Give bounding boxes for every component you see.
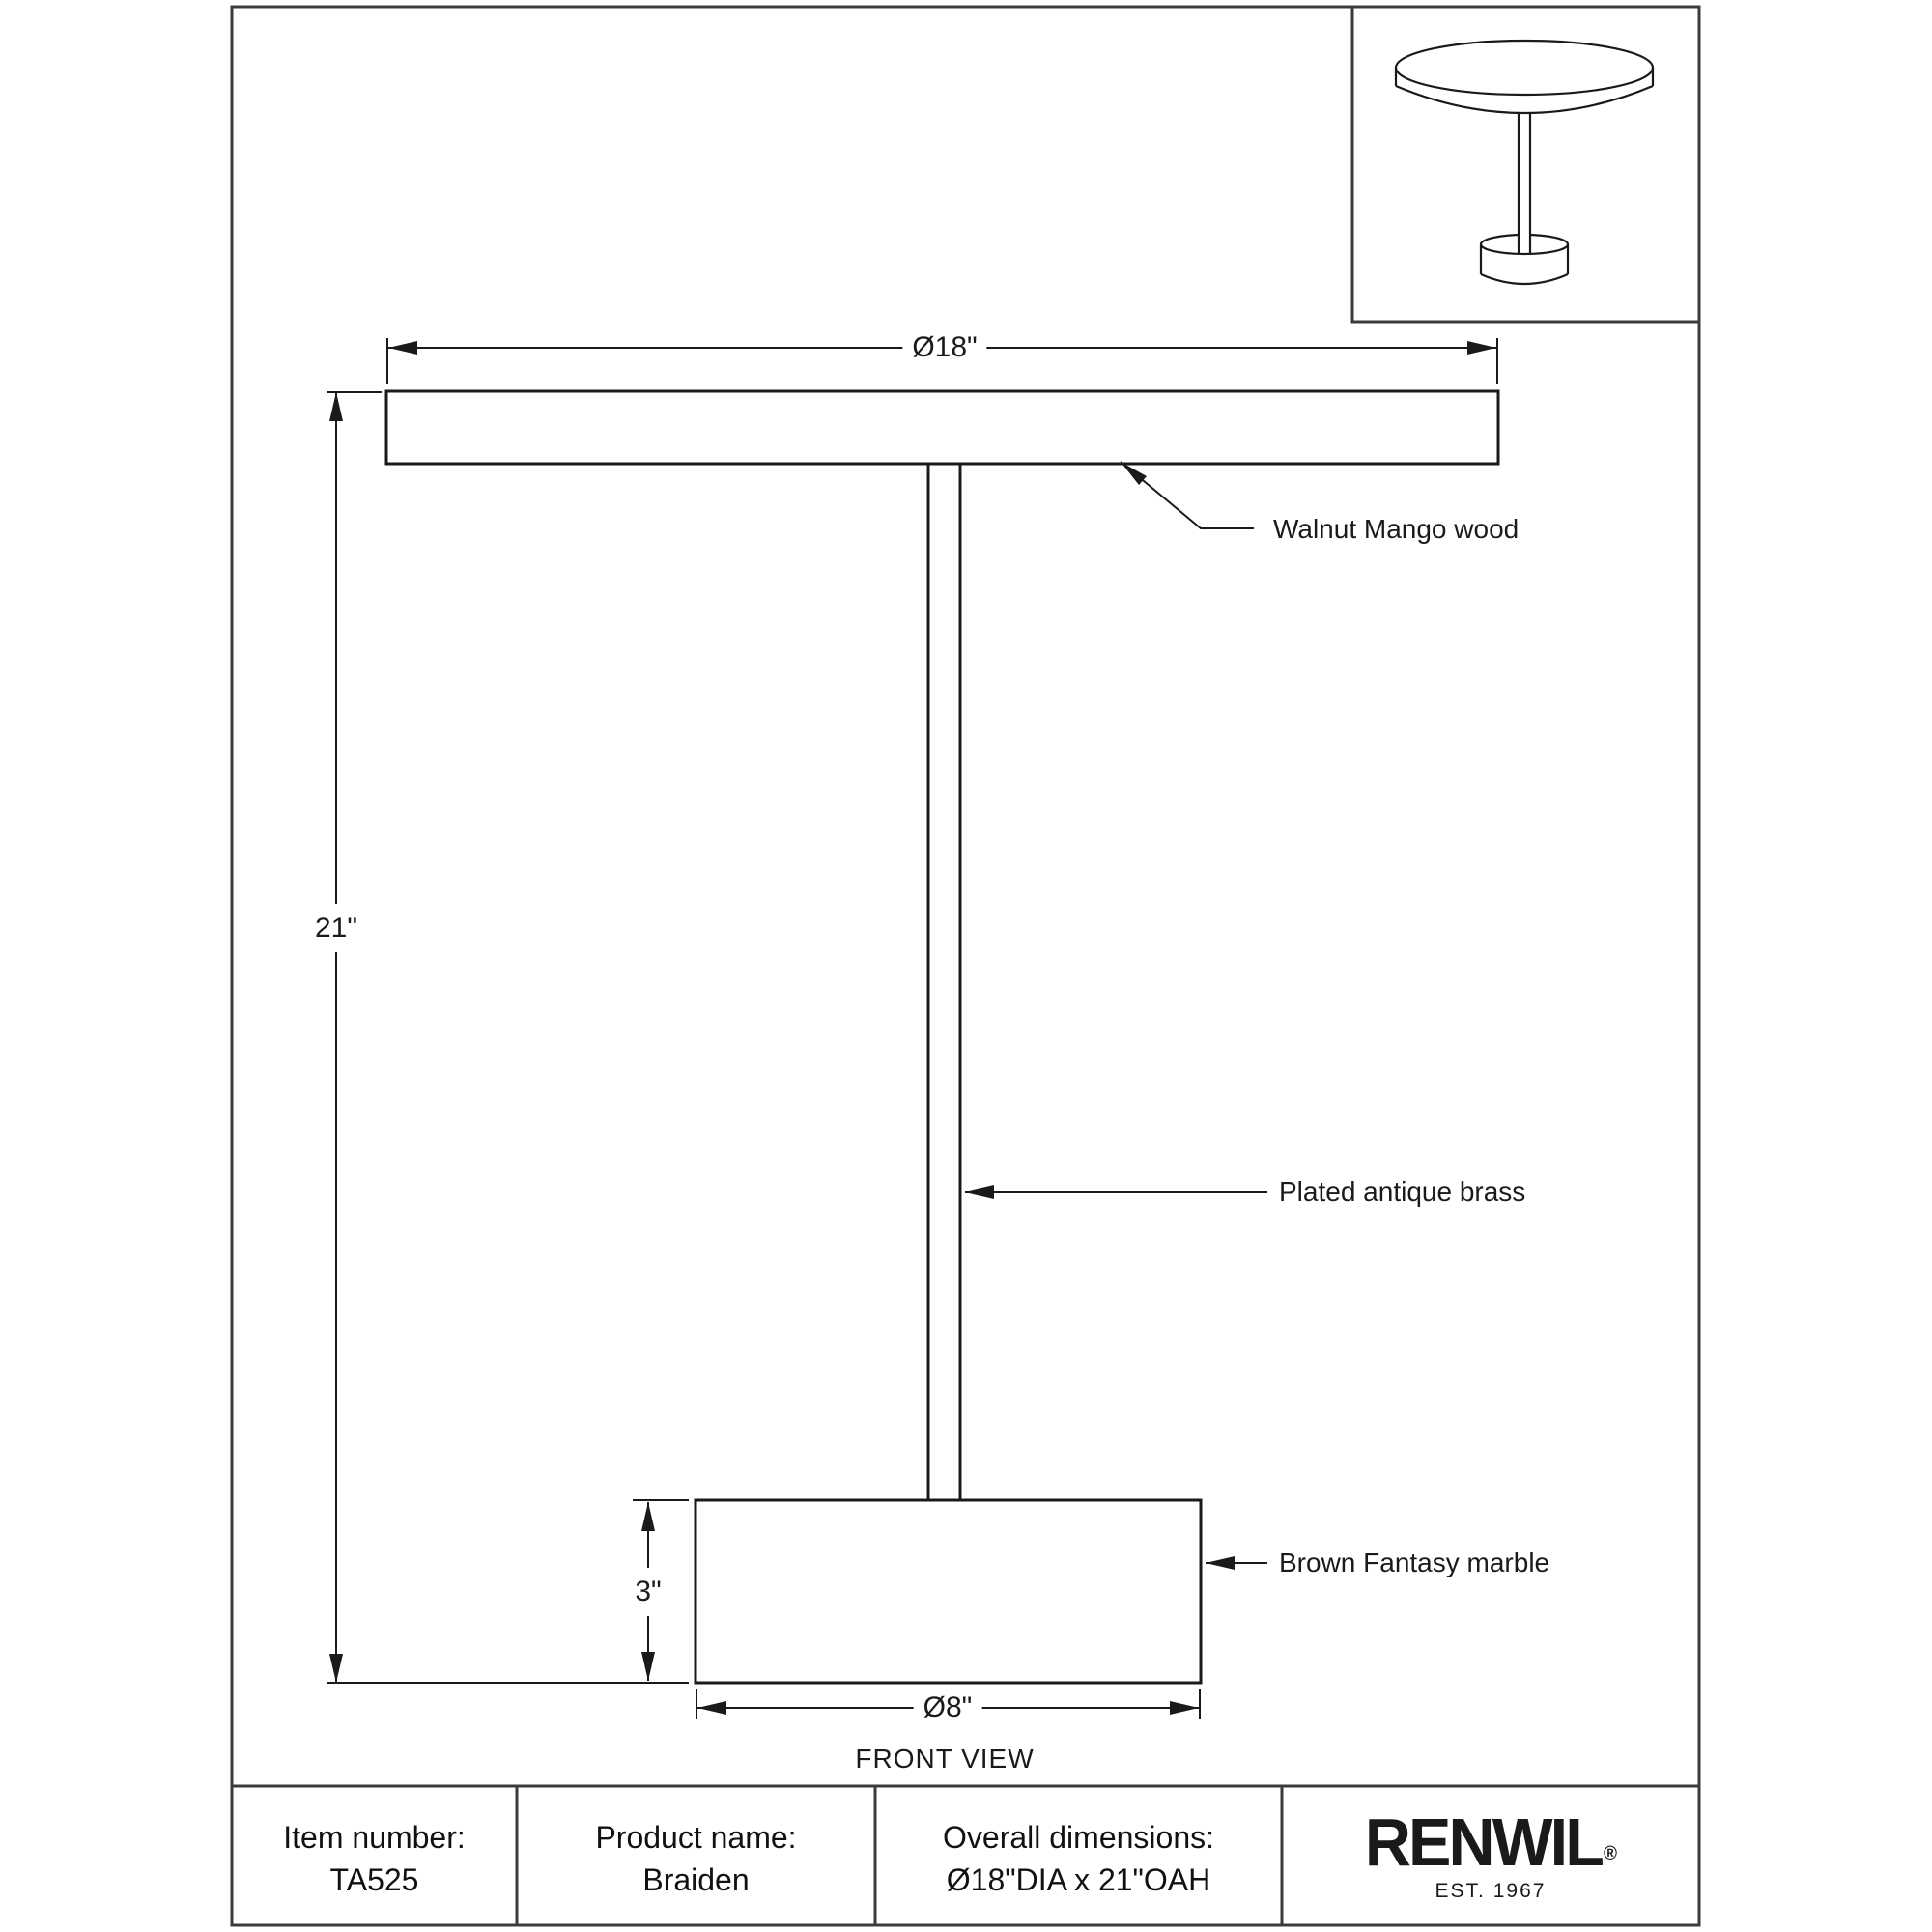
product-spec-sheet: Ø18" 21" 3" Ø8" Walnut Mango wood Plated… <box>0 0 1932 1932</box>
info-cell-product-name: Product name: Braiden <box>517 1786 875 1925</box>
arrowhead <box>1206 1556 1235 1570</box>
arrowhead-up <box>329 392 343 421</box>
brand-logo-line: RENWIL® <box>1364 1812 1616 1872</box>
brand-logo: RENWIL <box>1364 1804 1601 1880</box>
front-view-tabletop <box>386 391 1498 464</box>
inset-stem-fill <box>1520 115 1530 248</box>
dim-label-base-height: 3" <box>629 1568 667 1616</box>
leader-line <box>1121 462 1254 528</box>
info-cell-item-number: Item number: TA525 <box>232 1786 517 1925</box>
dim-label-overall-height: 21" <box>309 904 363 952</box>
arrowhead-down <box>641 1652 655 1681</box>
dim-label-base-diameter: Ø8" <box>914 1690 982 1726</box>
arrowhead-right <box>1467 341 1496 355</box>
leader-stem-material <box>965 1185 1267 1199</box>
front-view-base <box>696 1500 1201 1683</box>
info-cell-brand: RENWIL® EST. 1967 <box>1282 1786 1699 1925</box>
inset-base-bottom-arc <box>1481 274 1568 284</box>
item-number-value: TA525 <box>330 1859 419 1901</box>
view-label: FRONT VIEW <box>855 1744 1034 1775</box>
inset-isometric-view <box>1396 41 1653 284</box>
leader-tabletop-material <box>1121 462 1254 528</box>
arrowhead-left <box>697 1701 726 1715</box>
callout-stem-material: Plated antique brass <box>1279 1179 1525 1206</box>
overall-dimensions-label: Overall dimensions: <box>943 1816 1214 1859</box>
arrowhead <box>965 1185 994 1199</box>
frame-border <box>232 7 1699 1925</box>
overall-dimensions-value: Ø18"DIA x 21"OAH <box>947 1859 1211 1901</box>
inset-tabletop-ellipse <box>1396 41 1653 95</box>
callout-tabletop-material: Walnut Mango wood <box>1273 516 1519 543</box>
product-name-value: Braiden <box>642 1859 749 1901</box>
leader-base-material <box>1206 1556 1267 1570</box>
dim-label-top-diameter: Ø18" <box>902 329 986 366</box>
item-number-label: Item number: <box>283 1816 466 1859</box>
arrowhead <box>1121 462 1147 485</box>
registered-trademark-icon: ® <box>1604 1843 1617 1864</box>
callout-base-material: Brown Fantasy marble <box>1279 1549 1549 1577</box>
arrowhead-up <box>641 1502 655 1531</box>
arrowhead-left <box>388 341 417 355</box>
technical-drawing-svg <box>0 0 1932 1932</box>
product-name-label: Product name: <box>595 1816 796 1859</box>
info-cell-overall-dimensions: Overall dimensions: Ø18"DIA x 21"OAH <box>875 1786 1282 1925</box>
arrowhead-right <box>1170 1701 1199 1715</box>
front-view <box>386 391 1498 1683</box>
arrowhead-down <box>329 1654 343 1683</box>
brand-established: EST. 1967 <box>1435 1880 1547 1903</box>
dimension-overall-height <box>327 392 689 1683</box>
